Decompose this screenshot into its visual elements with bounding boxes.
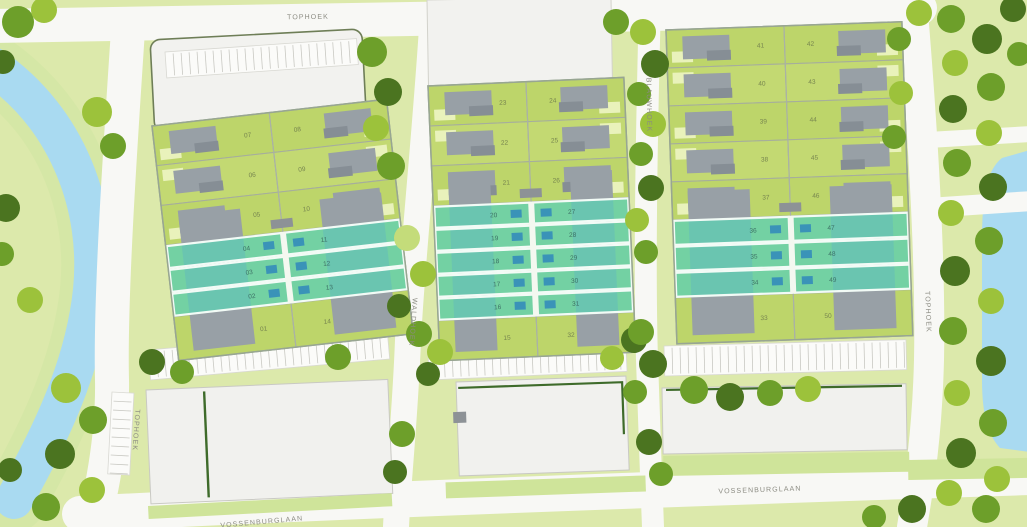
tree: [45, 439, 75, 469]
tree: [942, 50, 968, 76]
dormer: [512, 255, 523, 263]
dormer: [771, 251, 782, 259]
tree: [972, 24, 1002, 54]
tree: [600, 346, 624, 370]
house-wing: [841, 159, 865, 170]
plot-number: 49: [829, 277, 837, 284]
street-label-blauwhoek: BLAUWHOEK: [645, 78, 653, 133]
house-wing: [561, 141, 585, 152]
dormer: [266, 265, 278, 274]
block-2: 232422252126202719281829173016311532: [428, 77, 636, 360]
plot-number: 35: [750, 253, 758, 260]
parking-left-street: [108, 392, 134, 475]
plot-number: 36: [749, 227, 757, 234]
tree: [882, 125, 906, 149]
plot-number: 28: [569, 232, 577, 239]
plot-number: 24: [549, 97, 557, 104]
dormer: [268, 289, 280, 298]
tree: [79, 406, 107, 434]
white-building-bottom-left: [146, 379, 393, 503]
utility-box: [453, 412, 466, 423]
tree: [898, 495, 926, 523]
street-label-tophoek-right: TOPHOEK: [923, 291, 931, 333]
plot-number: 47: [827, 225, 835, 232]
plot-number: 33: [760, 315, 768, 322]
dormer: [510, 210, 521, 218]
plot-number: 18: [492, 258, 500, 265]
plot-number: 09: [298, 166, 306, 174]
plot-number: 15: [503, 335, 511, 342]
parking-below-block3: [664, 340, 907, 376]
tree: [325, 344, 351, 370]
tree: [2, 6, 34, 38]
tree: [649, 462, 673, 486]
tree: [978, 288, 1004, 314]
tree: [944, 380, 970, 406]
tree: [17, 287, 43, 313]
tree: [603, 9, 629, 35]
plot-number: 04: [243, 245, 251, 253]
dormer: [770, 225, 781, 233]
plot-number: 26: [552, 177, 560, 184]
plot-number: 23: [499, 100, 507, 107]
tree: [940, 256, 970, 286]
street-label-tophoek-top: TOPHOEK: [287, 14, 329, 22]
plot-number: 06: [248, 172, 256, 180]
tree: [943, 149, 971, 177]
tree: [374, 78, 402, 106]
dormer: [543, 277, 554, 285]
plot-number: 02: [248, 293, 256, 301]
tree: [976, 346, 1006, 376]
tree: [638, 175, 664, 201]
plot-number: 42: [807, 41, 815, 48]
tree: [416, 362, 440, 386]
tree: [976, 120, 1002, 146]
tree: [630, 19, 656, 45]
house-wing: [708, 88, 732, 99]
plot-number: 37: [762, 194, 770, 201]
house-wing: [707, 50, 731, 61]
tree: [427, 339, 453, 365]
plot-number: 16: [494, 304, 502, 311]
tree: [889, 81, 913, 105]
plot-number: 45: [811, 155, 819, 162]
tree: [389, 421, 415, 447]
tree: [383, 460, 407, 484]
tree: [625, 208, 649, 232]
tree: [939, 317, 967, 345]
tree: [639, 350, 667, 378]
dormer: [802, 276, 813, 284]
tree: [936, 480, 962, 506]
site-plan-svg: 0708060905100411031202130114232422252126…: [0, 0, 1027, 527]
dormer: [772, 277, 783, 285]
tree: [394, 225, 420, 251]
tree: [170, 360, 194, 384]
utility-box: [779, 202, 801, 212]
tree: [887, 27, 911, 51]
tree: [82, 97, 112, 127]
plot-number: 44: [810, 117, 818, 124]
plot-number: 50: [824, 313, 832, 320]
house-wing: [709, 126, 733, 137]
tree: [906, 0, 932, 26]
tree: [629, 142, 653, 166]
house-wing: [839, 121, 863, 132]
house-wing: [838, 83, 862, 94]
plot-number: 30: [571, 278, 579, 285]
plot-number: 07: [244, 132, 252, 140]
plot-number: 20: [490, 212, 498, 219]
house-wing: [837, 45, 861, 56]
tree: [937, 5, 965, 33]
plot-number: 05: [253, 211, 261, 219]
tree: [623, 380, 647, 404]
tree: [979, 409, 1007, 437]
tree: [795, 376, 821, 402]
tree: [79, 477, 105, 503]
tree: [628, 319, 654, 345]
tree: [972, 495, 1000, 523]
tree: [634, 240, 658, 264]
tree: [716, 383, 744, 411]
dormer: [263, 241, 275, 250]
plot-number: 22: [501, 140, 509, 147]
house-wing: [471, 145, 495, 156]
site-plan: 0708060905100411031202130114232422252126…: [0, 0, 1027, 527]
tree: [139, 349, 165, 375]
tree: [363, 115, 389, 141]
plot-number: 48: [828, 251, 836, 258]
tree: [946, 438, 976, 468]
white-building-top-middle: [427, 0, 613, 88]
tree: [680, 376, 708, 404]
tree: [757, 380, 783, 406]
plot-number: 01: [260, 325, 268, 333]
plot-number: 11: [320, 236, 328, 244]
block-3: 414240433944384537463647354834493350: [666, 22, 913, 344]
tree: [51, 373, 81, 403]
tree: [977, 73, 1005, 101]
plot-number: 39: [760, 118, 768, 125]
tree: [387, 294, 411, 318]
plot-number: 25: [551, 137, 559, 144]
dormer: [801, 250, 812, 258]
tree: [636, 429, 662, 455]
plot-number: 03: [245, 269, 253, 277]
tree: [357, 37, 387, 67]
plot-number: 43: [808, 79, 816, 86]
plot-number: 10: [302, 206, 310, 214]
dormer: [293, 238, 305, 247]
dormer: [540, 208, 551, 216]
tree: [100, 133, 126, 159]
house-wing: [559, 101, 583, 112]
plot-number: 21: [503, 180, 511, 187]
tree: [984, 466, 1010, 492]
dormer: [515, 301, 526, 309]
dormer: [511, 233, 522, 241]
plot-number: 31: [572, 301, 580, 308]
plot-number: 46: [812, 193, 820, 200]
dormer: [800, 224, 811, 232]
tree: [410, 261, 436, 287]
utility-box: [520, 188, 542, 198]
plot-number: 34: [751, 279, 759, 286]
tree: [32, 493, 60, 521]
house-wing: [469, 105, 493, 116]
plot-number: 29: [570, 255, 578, 262]
tree: [975, 227, 1003, 255]
tree: [377, 152, 405, 180]
plot-number: 08: [293, 126, 301, 134]
tree: [979, 173, 1007, 201]
plot-number: 32: [567, 332, 575, 339]
tree: [938, 200, 964, 226]
dormer: [544, 300, 555, 308]
street-tophoek-right: [912, 0, 929, 527]
plot-number: 17: [493, 281, 501, 288]
house-wing: [711, 164, 735, 175]
dormer: [513, 278, 524, 286]
plot-number: 12: [323, 260, 331, 268]
dormer: [542, 254, 553, 262]
plot-number: 14: [323, 318, 331, 326]
plot-number: 41: [757, 42, 765, 49]
dormer: [541, 231, 552, 239]
plot-number: 27: [568, 209, 576, 216]
plot-number: 19: [491, 235, 499, 242]
plot-number: 40: [758, 80, 766, 87]
plot-number: 38: [761, 156, 769, 163]
plot-number: 13: [325, 284, 333, 292]
dormer: [295, 261, 307, 270]
tree: [939, 95, 967, 123]
tree: [641, 50, 669, 78]
dormer: [298, 285, 310, 294]
